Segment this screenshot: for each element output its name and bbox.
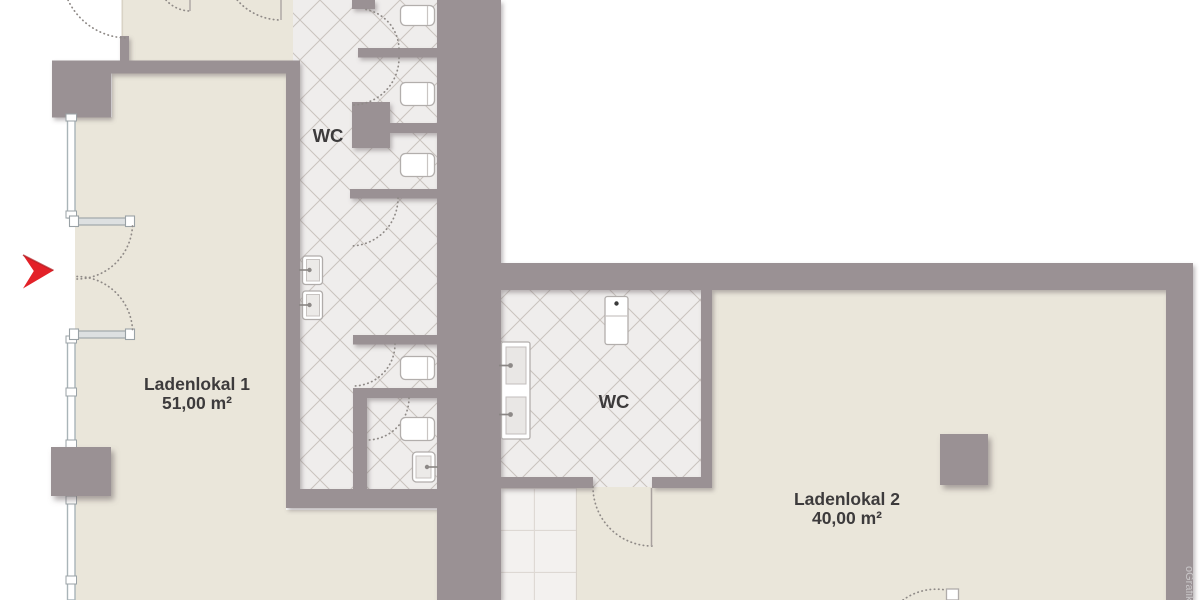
svg-text:Ladenlokal 1: Ladenlokal 1	[144, 374, 250, 394]
svg-text:40,00 m²: 40,00 m²	[812, 508, 882, 528]
svg-text:51,00 m²: 51,00 m²	[162, 393, 232, 413]
svg-text:Ladenlokal 2: Ladenlokal 2	[794, 489, 900, 509]
svg-text:oGrafik: oGrafik	[1183, 566, 1195, 600]
svg-text:WC: WC	[599, 391, 630, 412]
svg-text:WC: WC	[313, 125, 344, 146]
